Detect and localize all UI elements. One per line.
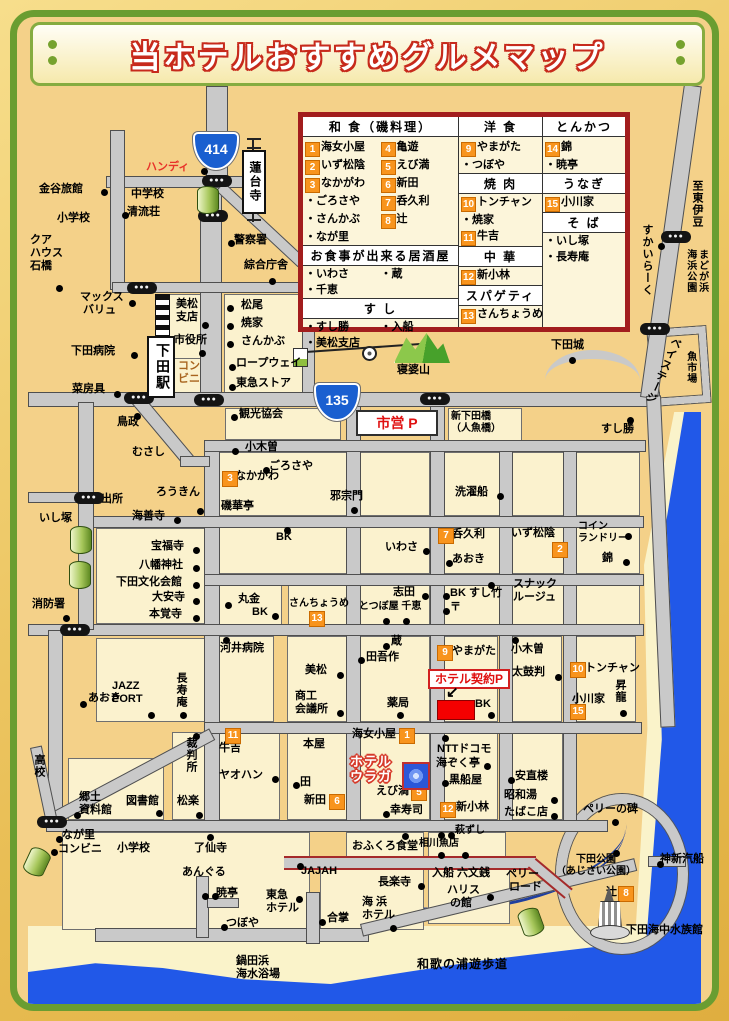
map-label: 美松 bbox=[305, 664, 327, 677]
poi-dot bbox=[657, 861, 664, 868]
map-label: 清流荘 bbox=[127, 206, 160, 219]
map-label: ホテル ウラガ bbox=[350, 754, 392, 785]
map-label: 邪宗門 bbox=[330, 490, 363, 503]
road bbox=[204, 446, 220, 832]
legend-category-header: 中 華 bbox=[459, 246, 542, 267]
map-label: 相川魚店 bbox=[419, 838, 459, 850]
map-label: 綜合庁舎 bbox=[244, 259, 288, 272]
poi-dot bbox=[201, 168, 208, 175]
legend-item: 3なかがわ bbox=[305, 175, 381, 193]
map-label: 下田海中水族館 bbox=[626, 924, 703, 937]
poi-dot bbox=[202, 893, 209, 900]
traffic-light-icon: ●●● bbox=[37, 816, 67, 828]
legend-item-badge: 8 bbox=[381, 214, 396, 229]
poi-dot bbox=[613, 850, 620, 857]
poi-dot bbox=[337, 672, 344, 679]
map-label: 図書館 bbox=[126, 795, 159, 808]
poi-dot bbox=[284, 527, 291, 534]
map-label: 暁亭 bbox=[216, 887, 238, 900]
poi-dot bbox=[358, 657, 365, 664]
poi-dot bbox=[131, 352, 138, 359]
road bbox=[95, 928, 369, 942]
legend-item: 8辻 bbox=[381, 211, 457, 229]
legend-item: ・いし塚 bbox=[545, 233, 589, 249]
legend-item: ・美松支店 bbox=[305, 335, 360, 351]
road bbox=[306, 892, 320, 944]
legend-item: ・なが里 bbox=[305, 229, 349, 245]
poi-dot bbox=[221, 924, 228, 931]
map-label: ろうきん bbox=[156, 486, 200, 499]
poi-dot bbox=[122, 212, 129, 219]
poi-dot bbox=[156, 810, 163, 817]
poi-dot bbox=[202, 322, 209, 329]
map-label: 蔵 bbox=[391, 635, 402, 648]
map-label: 新下田橋 （人魚橋） bbox=[451, 411, 501, 435]
map-label: ペリーの碑 bbox=[583, 803, 638, 816]
railway-track-icon bbox=[155, 294, 170, 340]
poi-dot bbox=[223, 637, 230, 644]
poi-dot bbox=[180, 712, 187, 719]
map-label: 神新汽船 bbox=[660, 853, 704, 866]
restaurant-number-badge: 3 bbox=[222, 471, 238, 487]
legend-row: ・いわさ・蔵 bbox=[303, 266, 458, 282]
restaurant-legend: 和 食（磯料理）1海女小屋4亀遊2いず松陰5えび満3なかがわ6新田・ごろさや7呑… bbox=[298, 112, 630, 332]
map-label: 入船 六文銭 bbox=[432, 867, 490, 880]
poi-dot bbox=[442, 735, 449, 742]
legend-item: 11牛吉 bbox=[461, 228, 499, 246]
poi-dot bbox=[438, 852, 445, 859]
poi-dot bbox=[403, 618, 410, 625]
poi-dot bbox=[551, 813, 558, 820]
bridge-icon bbox=[69, 561, 91, 589]
poi-dot bbox=[80, 701, 87, 708]
map-label: なが里 bbox=[62, 829, 95, 842]
poi-dot bbox=[383, 618, 390, 625]
poi-dot bbox=[337, 710, 344, 717]
poi-dot bbox=[193, 615, 200, 622]
poi-dot bbox=[446, 560, 453, 567]
poi-dot bbox=[418, 883, 425, 890]
map-label: 宝福寺 bbox=[151, 540, 184, 553]
poi-dot bbox=[351, 507, 358, 514]
legend-item: ・長寿庵 bbox=[545, 249, 589, 265]
legend-row: ・さんかぶ8辻 bbox=[303, 211, 458, 229]
legend-item-badge: 5 bbox=[381, 160, 396, 175]
poi-dot bbox=[114, 391, 121, 398]
map-label: 東急 ホテル bbox=[266, 889, 299, 915]
legend-category-header: 焼 肉 bbox=[459, 173, 542, 194]
map-label: BK すし竹 bbox=[450, 587, 502, 600]
city-block bbox=[511, 452, 565, 516]
map-label: 商工 会議所 bbox=[295, 690, 328, 716]
map-label: 新小林 bbox=[456, 801, 489, 814]
poi-dot bbox=[487, 894, 494, 901]
legend-item: ・すし勝 bbox=[305, 319, 381, 335]
map-label: BK bbox=[475, 698, 491, 711]
map-label: 海女小屋 bbox=[352, 728, 396, 741]
map-label: あおき bbox=[452, 553, 485, 566]
legend-category-header: そ ば bbox=[543, 212, 625, 233]
map-label: 高校 bbox=[32, 754, 45, 778]
map-label: 中学校 bbox=[131, 188, 164, 201]
poi-dot bbox=[293, 782, 300, 789]
map-label: たばこ店 bbox=[504, 806, 548, 819]
map-label: 合掌 bbox=[327, 912, 349, 925]
map-label: 幸寿司 bbox=[390, 804, 423, 817]
map-label: 本屋 bbox=[303, 738, 325, 751]
poi-dot bbox=[488, 582, 495, 589]
deco-dot bbox=[676, 40, 685, 49]
map-label: あんぐる bbox=[182, 866, 226, 879]
map-label: 小学校 bbox=[57, 212, 90, 225]
legend-item-badge: 15 bbox=[545, 197, 560, 212]
road bbox=[110, 130, 125, 290]
restaurant-number-badge: 13 bbox=[309, 611, 325, 627]
legend-item-badge: 1 bbox=[305, 142, 320, 157]
map-label: 小木曽 bbox=[511, 643, 544, 656]
poi-dot bbox=[272, 776, 279, 783]
deco-dot bbox=[48, 40, 57, 49]
legend-item-badge: 12 bbox=[461, 270, 476, 285]
legend-item: ・暁亭 bbox=[545, 157, 578, 173]
map-label: やまがた bbox=[452, 645, 496, 658]
poi-dot bbox=[423, 548, 430, 555]
road bbox=[86, 516, 644, 528]
legend-row: ・焼家 bbox=[459, 212, 542, 228]
map-label: むさし bbox=[132, 446, 165, 459]
legend-item-badge: 13 bbox=[461, 309, 476, 324]
map-label: 呑久利 bbox=[452, 528, 485, 541]
poi-dot bbox=[438, 832, 445, 839]
map-label: 大安寺 bbox=[152, 591, 185, 604]
poi-dot bbox=[263, 467, 270, 474]
poi-dot bbox=[569, 357, 576, 364]
map-label: 黒船屋 bbox=[449, 774, 482, 787]
poi-dot bbox=[512, 637, 519, 644]
map-label: とつぼ屋 千恵 bbox=[359, 601, 421, 613]
map-label: 〒 bbox=[450, 601, 461, 614]
city-block bbox=[575, 452, 640, 516]
legend-row: 14錦 bbox=[543, 137, 625, 157]
poi-dot bbox=[448, 832, 455, 839]
map-label: 松楽 bbox=[177, 795, 199, 808]
legend-item: ・さんかぶ bbox=[305, 211, 381, 229]
poi-dot bbox=[74, 812, 81, 819]
legend-item: ・焼家 bbox=[461, 212, 494, 228]
map-canvas: 当ホテルおすすめグルメマップ 和 食（磯料理）1海女小屋4亀遊2いず松陰5えび満… bbox=[10, 10, 719, 1011]
legend-item: 1海女小屋 bbox=[305, 139, 381, 157]
map-label: 下田文化会館 bbox=[116, 576, 182, 589]
legend-item-badge: 14 bbox=[545, 142, 560, 157]
poi-dot bbox=[56, 285, 63, 292]
map-label: 市役所 bbox=[174, 334, 207, 347]
legend-item: ・千恵 bbox=[305, 282, 338, 298]
legend-item: ・いわさ bbox=[305, 266, 381, 282]
poi-dot bbox=[174, 517, 181, 524]
map-label: 郷土 資料館 bbox=[79, 791, 112, 817]
poi-dot bbox=[225, 602, 232, 609]
route-414-shield: 414 bbox=[193, 132, 239, 170]
map-label: ペリー ロード bbox=[506, 868, 542, 894]
traffic-light-icon: ●●● bbox=[60, 624, 90, 636]
traffic-light-icon: ●●● bbox=[420, 393, 450, 405]
map-label: 錦 bbox=[602, 552, 613, 565]
restaurant-number-badge: 10 bbox=[570, 662, 586, 678]
legend-category-header: 洋 食 bbox=[459, 117, 542, 137]
traffic-light-icon: ●●● bbox=[127, 282, 157, 294]
poi-dot bbox=[232, 448, 239, 455]
parking-arrow-icon: ↙ bbox=[446, 684, 459, 702]
map-label: 萩ずし bbox=[455, 825, 485, 837]
legend-column: 和 食（磯料理）1海女小屋4亀遊2いず松陰5えび満3なかがわ6新田・ごろさや7呑… bbox=[303, 117, 459, 327]
restaurant-number-badge: 9 bbox=[437, 645, 453, 661]
poi-dot bbox=[397, 712, 404, 719]
poi-dot bbox=[227, 323, 234, 330]
poi-dot bbox=[193, 598, 200, 605]
legend-column: 洋 食9やまがた・つぼや焼 肉10トンチャン・焼家11牛吉中 華12新小林スパゲ… bbox=[459, 117, 543, 327]
contract-parking-lot bbox=[437, 700, 475, 720]
legend-item: 9やまがた bbox=[461, 139, 521, 157]
map-label: 東急ストア bbox=[236, 377, 291, 390]
traffic-light-icon: ●●● bbox=[640, 323, 670, 335]
poi-dot bbox=[272, 613, 279, 620]
poi-dot bbox=[229, 364, 236, 371]
poi-dot bbox=[658, 243, 665, 250]
map-label: 小学校 bbox=[117, 842, 150, 855]
legend-row: 13さんちょうめ bbox=[459, 306, 542, 324]
map-label: 田 bbox=[300, 776, 311, 789]
poi-dot bbox=[197, 508, 204, 515]
map-label: 魚市場 bbox=[684, 351, 696, 384]
map-label: NTTドコモ bbox=[437, 743, 491, 756]
legend-row: 1海女小屋4亀遊 bbox=[303, 137, 458, 157]
restaurant-number-badge: 2 bbox=[552, 542, 568, 558]
legend-item-badge: 11 bbox=[461, 231, 476, 246]
map-label: つぼや bbox=[226, 917, 259, 930]
poi-dot bbox=[390, 925, 397, 932]
map-label: いず松陰 bbox=[511, 527, 555, 540]
map-label: 薬局 bbox=[387, 697, 409, 710]
legend-item: 7呑久利 bbox=[381, 193, 457, 211]
road bbox=[563, 444, 577, 830]
legend-item: 5えび満 bbox=[381, 157, 457, 175]
map-label: 松尾 bbox=[241, 299, 263, 312]
legend-item-badge: 3 bbox=[305, 178, 320, 193]
restaurant-number-badge: 11 bbox=[225, 728, 241, 744]
map-label: あおき bbox=[88, 692, 121, 705]
map-label: 菜房具 bbox=[72, 383, 105, 396]
map-label: 昇龍 bbox=[613, 679, 626, 703]
legend-row: 9やまがた bbox=[459, 137, 542, 157]
legend-row: ・ごろさや7呑久利 bbox=[303, 193, 458, 211]
map-label: 昭和湯 bbox=[504, 789, 537, 802]
map-label: 下田公園 （あじさい公園） bbox=[556, 854, 636, 878]
poi-dot bbox=[193, 565, 200, 572]
poi-dot bbox=[620, 710, 627, 717]
map-label: ハリス の館 bbox=[447, 884, 480, 910]
aquarium-lighthouse-base bbox=[590, 925, 630, 940]
map-label: マックス バリュ bbox=[80, 291, 124, 317]
map-label: 海善寺 bbox=[132, 510, 165, 523]
restaurant-number-badge: 12 bbox=[440, 802, 456, 818]
road bbox=[106, 176, 256, 188]
legend-category-header: とんかつ bbox=[543, 117, 625, 137]
map-label: 消防署 bbox=[32, 598, 65, 611]
map-label: スナック ルージュ bbox=[513, 578, 557, 604]
legend-category-header: スパゲティ bbox=[459, 285, 542, 306]
road bbox=[204, 722, 642, 734]
legend-row: 2いず松陰5えび満 bbox=[303, 157, 458, 175]
poi-dot bbox=[297, 863, 304, 870]
map-label: 海ぞく亭 bbox=[436, 757, 480, 770]
map-label: 田吾作 bbox=[366, 651, 399, 664]
page-title: 当ホテルおすすめグルメマップ bbox=[130, 32, 606, 77]
map-label: 安直楼 bbox=[515, 770, 548, 783]
map-label: 寝婆山 bbox=[397, 364, 430, 377]
legend-item: 14錦 bbox=[545, 139, 572, 157]
poi-dot bbox=[383, 811, 390, 818]
map-label: 観光協会 bbox=[239, 408, 283, 421]
map-label: 本覚寺 bbox=[149, 608, 182, 621]
gourmet-map-page: 当ホテルおすすめグルメマップ 和 食（磯料理）1海女小屋4亀遊2いず松陰5えび満… bbox=[0, 0, 729, 1021]
map-label: おふくろ食堂 bbox=[352, 840, 418, 853]
hotel-contract-parking-sign: ホテル契約P bbox=[428, 669, 510, 689]
legend-item: ・ごろさや bbox=[305, 193, 381, 211]
map-label: 至東伊豆 bbox=[690, 180, 703, 228]
map-label: 美松 支店 bbox=[176, 298, 198, 324]
poi-dot bbox=[484, 763, 491, 770]
map-label: 焼家 bbox=[241, 317, 263, 330]
city-block bbox=[441, 452, 501, 516]
legend-category-header: うなぎ bbox=[543, 173, 625, 194]
poi-dot bbox=[497, 493, 504, 500]
legend-item: 15小川家 bbox=[545, 194, 594, 212]
poi-dot bbox=[422, 593, 429, 600]
legend-item-badge: 4 bbox=[381, 142, 396, 157]
poi-dot bbox=[228, 240, 235, 247]
poi-dot bbox=[212, 893, 219, 900]
restaurant-number-badge: 8 bbox=[618, 886, 634, 902]
legend-item: 10トンチャン bbox=[461, 194, 532, 212]
map-label: いし塚 bbox=[39, 512, 72, 525]
map-label: 長寿庵 bbox=[174, 672, 187, 708]
city-block bbox=[359, 452, 430, 516]
poi-dot bbox=[612, 819, 619, 826]
poi-dot bbox=[56, 836, 63, 843]
map-label: コイン ランドリー bbox=[578, 521, 628, 545]
deco-dot bbox=[676, 56, 685, 65]
poi-dot bbox=[627, 417, 634, 424]
poi-dot bbox=[508, 777, 515, 784]
legend-row: ・暁亭 bbox=[543, 157, 625, 173]
map-label: 太鼓判 bbox=[512, 666, 545, 679]
poi-dot bbox=[148, 712, 155, 719]
poi-dot bbox=[101, 189, 108, 196]
poi-dot bbox=[319, 919, 326, 926]
bridge-icon bbox=[70, 526, 92, 554]
poi-dot bbox=[462, 852, 469, 859]
legend-item: 13さんちょうめ bbox=[461, 306, 543, 324]
poi-dot bbox=[402, 833, 409, 840]
legend-row: ・千恵 bbox=[303, 282, 458, 298]
poi-dot bbox=[227, 305, 234, 312]
restaurant-number-badge: 6 bbox=[329, 794, 345, 810]
legend-row: ・つぼや bbox=[459, 157, 542, 173]
map-label: 金谷旅館 bbox=[39, 183, 83, 196]
poi-dot bbox=[625, 533, 632, 540]
map-label: 八幡神社 bbox=[139, 559, 183, 572]
map-label: 丸金 bbox=[238, 593, 260, 606]
poi-dot bbox=[134, 413, 141, 420]
map-label: ヤオハン bbox=[219, 769, 263, 782]
legend-row: 12新小林 bbox=[459, 267, 542, 285]
map-label: 下田城 bbox=[551, 339, 584, 352]
bridge-icon bbox=[197, 186, 219, 214]
legend-row: ・長寿庵 bbox=[543, 249, 625, 265]
map-label: さんかぶ bbox=[241, 335, 285, 348]
legend-item-badge: 7 bbox=[381, 196, 396, 211]
map-label: BK bbox=[252, 606, 268, 619]
poi-dot bbox=[488, 712, 495, 719]
legend-item-badge: 6 bbox=[381, 178, 396, 193]
map-label: 長楽寺 bbox=[378, 876, 411, 889]
map-label: ハンディ bbox=[146, 161, 189, 174]
poi-dot bbox=[231, 414, 238, 421]
poi-dot bbox=[443, 608, 450, 615]
map-label: 和歌の浦遊歩道 bbox=[417, 957, 508, 971]
legend-item-badge: 2 bbox=[305, 160, 320, 175]
poi-dot bbox=[623, 559, 630, 566]
rendaiji-station-sign: 蓮台寺 bbox=[242, 150, 266, 214]
legend-category-header: お食事が出来る居酒屋 bbox=[303, 245, 458, 266]
map-label: 海 浜 ホテル bbox=[362, 896, 395, 922]
poi-dot bbox=[383, 643, 390, 650]
road bbox=[28, 624, 644, 636]
poi-dot bbox=[51, 849, 58, 856]
map-label: コン ビニ bbox=[178, 360, 200, 386]
road bbox=[204, 574, 644, 586]
map-label: 警察署 bbox=[234, 234, 267, 247]
map-label: 下田病院 bbox=[71, 345, 115, 358]
legend-item-badge: 9 bbox=[461, 142, 476, 157]
map-label: いわさ bbox=[385, 541, 418, 554]
legend-item-badge: 10 bbox=[461, 197, 476, 212]
legend-row: 11牛吉 bbox=[459, 228, 542, 246]
municipal-parking-sign: 市営 P bbox=[356, 410, 438, 436]
legend-row: 10トンチャン bbox=[459, 194, 542, 212]
poi-dot bbox=[193, 582, 200, 589]
map-label: クア ハウス 石橋 bbox=[30, 234, 63, 273]
aquarium-lighthouse-icon bbox=[604, 886, 614, 902]
legend-item: ・入船 bbox=[381, 319, 457, 335]
map-label: 了仙寺 bbox=[194, 842, 227, 855]
poi-dot bbox=[229, 384, 236, 391]
legend-row: ・なが里 bbox=[303, 229, 458, 245]
poi-dot bbox=[551, 797, 558, 804]
poi-dot bbox=[207, 834, 214, 841]
hotel-uraga-marker-icon bbox=[402, 762, 430, 790]
map-label: 新田 bbox=[304, 794, 326, 807]
map-label: すし勝 bbox=[601, 423, 634, 436]
poi-dot bbox=[193, 547, 200, 554]
map-label: さんちょうめ bbox=[289, 598, 349, 610]
map-label: コンビニ bbox=[58, 843, 102, 856]
poi-dot bbox=[442, 780, 449, 787]
traffic-light-icon: ●●● bbox=[194, 394, 224, 406]
poi-dot bbox=[296, 896, 303, 903]
poi-dot bbox=[555, 674, 562, 681]
title-banner: 当ホテルおすすめグルメマップ bbox=[30, 22, 705, 86]
